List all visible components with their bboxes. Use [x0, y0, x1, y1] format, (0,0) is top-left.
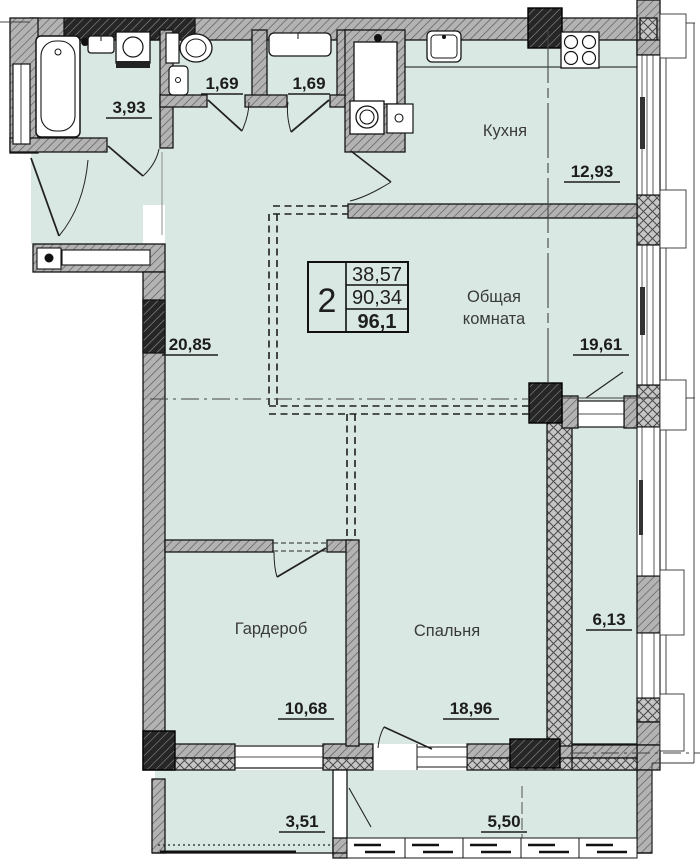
wc1-area-label: 1,69 [205, 74, 238, 93]
toilet-tank [166, 33, 179, 63]
floor-plan-drawing: 2 38,57 90,34 96,1 3,93 1,69 1,69 Кухня … [0, 0, 700, 862]
wardrobe-name-label: Гардероб [235, 620, 308, 638]
column-middle [529, 383, 562, 423]
legend-rooms-count: 2 [318, 282, 337, 320]
legend-apartment-area: 90,34 [352, 287, 402, 309]
bedroom-name-label: Спальня [414, 622, 480, 640]
water-heater [387, 104, 413, 133]
living-name-line2: комната [463, 310, 526, 328]
kitchen-area-label: 12,93 [571, 162, 614, 181]
legend-table: 2 38,57 90,34 96,1 [308, 262, 408, 333]
legend-living-area: 38,57 [352, 264, 402, 286]
living-area-label: 19,61 [580, 335, 623, 354]
loggia-area-label: 6,13 [592, 610, 625, 629]
bathroom-area-label: 3,93 [112, 98, 145, 117]
bathtub-drain [55, 49, 61, 55]
balcony-right-area-label: 5,50 [487, 812, 520, 831]
bedroom-area-label: 18,96 [450, 699, 493, 718]
riser-dot [45, 254, 54, 263]
balcony-left-area-label: 3,51 [285, 812, 318, 831]
column-top [528, 8, 562, 48]
kitchen-name-label: Кухня [483, 122, 527, 140]
wc2-area-label: 1,69 [292, 74, 325, 93]
living-name-line1: Общая [467, 288, 521, 306]
floor-plan: 2 38,57 90,34 96,1 3,93 1,69 1,69 Кухня … [0, 0, 700, 862]
left-wall-window [13, 64, 30, 144]
column-bottom-left [143, 731, 175, 770]
legend-total-area: 96,1 [358, 311, 397, 333]
loggia-glazing-lower [637, 633, 660, 698]
storage-counter [269, 33, 331, 56]
column-bottom-middle [510, 739, 560, 768]
hall-area-label: 20,85 [169, 335, 212, 354]
wardrobe-area-label: 10,68 [285, 699, 328, 718]
